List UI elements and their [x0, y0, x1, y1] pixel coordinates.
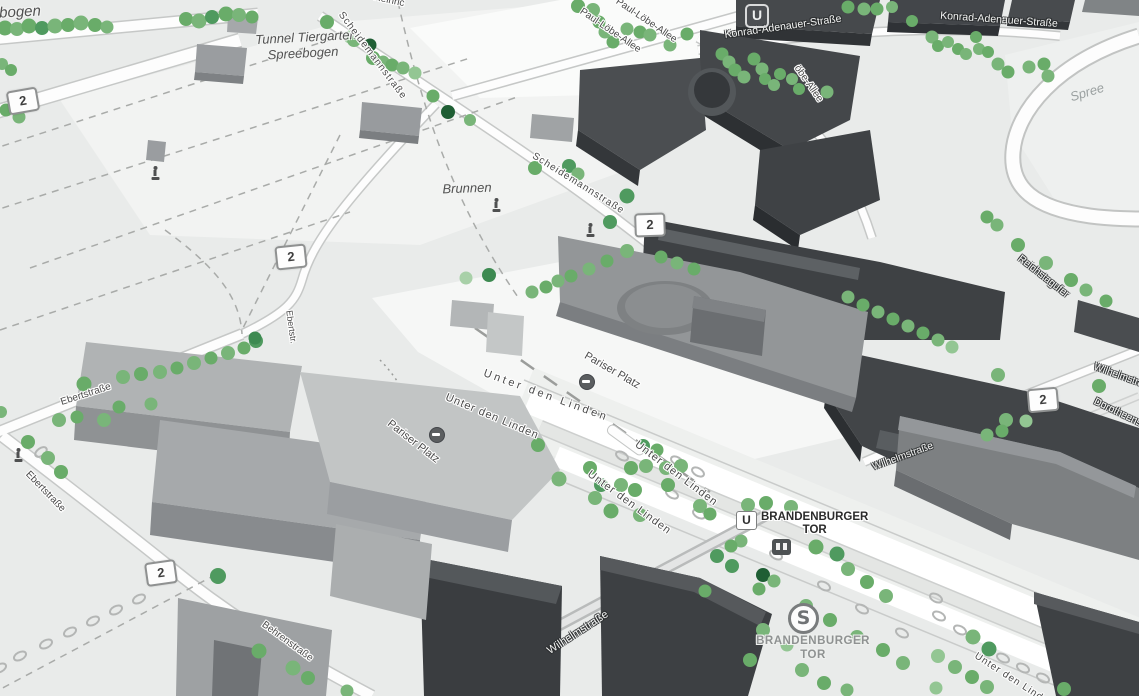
tree-marker — [101, 21, 114, 34]
tree-marker — [552, 472, 567, 487]
tree-marker — [710, 549, 724, 563]
tree-marker — [704, 508, 717, 521]
tree-marker — [1057, 682, 1071, 696]
tree-marker — [830, 547, 845, 562]
tree-marker — [872, 306, 885, 319]
s-station-name-line1: BRANDENBURGER — [756, 635, 870, 649]
map-geometry — [0, 0, 1139, 696]
tree-marker — [52, 413, 66, 427]
tree-marker — [621, 23, 634, 36]
tree-marker — [879, 589, 893, 603]
tree-marker — [671, 257, 684, 270]
tree-marker — [1100, 295, 1113, 308]
tree-marker — [841, 684, 854, 696]
tree-marker — [906, 15, 918, 27]
tree-marker — [932, 334, 945, 347]
tree-marker — [441, 105, 455, 119]
tree-marker — [981, 429, 994, 442]
tree-marker — [768, 79, 780, 91]
tree-marker — [88, 18, 102, 32]
tree-marker — [565, 270, 578, 283]
tree-marker — [116, 370, 130, 384]
tree-marker — [364, 39, 377, 52]
tree-marker — [74, 16, 89, 31]
tree-marker — [628, 483, 642, 497]
tree-marker — [1042, 70, 1055, 83]
tree-marker — [5, 64, 17, 76]
tree-marker — [13, 111, 26, 124]
tree-marker — [583, 263, 596, 276]
tree-marker — [857, 299, 870, 312]
tree-marker — [0, 104, 13, 117]
tree-marker — [249, 332, 262, 345]
tree-marker — [624, 461, 638, 475]
tree-marker — [604, 504, 619, 519]
tree-marker — [960, 48, 972, 60]
tree-marker — [738, 71, 751, 84]
road-oval-marking — [894, 627, 909, 640]
tree-marker — [97, 413, 111, 427]
tree-marker — [77, 377, 92, 392]
tree-marker — [970, 31, 982, 43]
tree-marker — [620, 244, 634, 258]
u-station-label: U BRANDENBURGER TOR — [736, 511, 868, 537]
tree-marker — [21, 435, 35, 449]
u-station-name-line2: TOR — [761, 524, 868, 537]
tree-marker — [917, 327, 930, 340]
tree-marker — [583, 461, 597, 475]
tree-marker — [795, 663, 809, 677]
tree-marker — [171, 362, 184, 375]
tree-marker — [246, 11, 259, 24]
tree-marker — [0, 406, 7, 418]
tree-marker — [286, 661, 301, 676]
tree-marker — [482, 268, 496, 282]
tree-marker — [71, 411, 84, 424]
tree-marker — [409, 67, 422, 80]
tree-marker — [1002, 66, 1015, 79]
tree-marker — [205, 10, 219, 24]
tree-marker — [871, 3, 884, 16]
tree-marker — [858, 3, 871, 16]
tree-marker — [54, 465, 68, 479]
tree-marker — [187, 356, 201, 370]
tree-marker — [1020, 415, 1033, 428]
building-block — [1082, 0, 1139, 16]
tree-marker — [931, 649, 945, 663]
tree-marker — [644, 29, 657, 42]
tree-marker — [526, 286, 539, 299]
tree-marker — [464, 114, 476, 126]
tree-marker — [1080, 284, 1093, 297]
s-station-name: BRANDENBURGER TOR — [756, 635, 870, 663]
tree-marker — [397, 62, 410, 75]
tree-marker — [991, 219, 1004, 232]
tree-marker — [659, 461, 673, 475]
tree-marker — [809, 540, 824, 555]
road-oval-marking — [38, 638, 53, 651]
tree-marker — [793, 83, 805, 95]
tree-marker — [614, 478, 628, 492]
tree-marker — [966, 630, 981, 645]
tree-marker — [725, 559, 739, 573]
tree-marker — [531, 438, 545, 452]
tree-marker — [61, 18, 75, 32]
tree-marker — [768, 575, 781, 588]
road-oval-marking — [108, 604, 123, 617]
tree-marker — [902, 320, 915, 333]
tree-marker — [386, 59, 399, 72]
u-bahn-badge: U — [736, 511, 757, 530]
building-block — [146, 140, 166, 162]
tree-marker — [219, 7, 234, 22]
tree-marker — [588, 491, 602, 505]
tree-marker — [982, 642, 997, 657]
tree-marker — [774, 68, 786, 80]
tree-marker — [633, 508, 647, 522]
tree-marker — [607, 36, 620, 49]
tree-marker — [965, 670, 979, 684]
tree-marker — [823, 613, 837, 627]
tree-marker — [145, 398, 158, 411]
tree-marker — [205, 352, 218, 365]
tree-marker — [930, 682, 943, 695]
tree-marker — [552, 275, 565, 288]
building-block — [888, 0, 1005, 26]
tree-marker — [603, 215, 617, 229]
tree-marker — [842, 1, 855, 14]
tree-marker — [238, 342, 251, 355]
tree-marker — [942, 36, 954, 48]
tree-marker — [601, 255, 614, 268]
map-canvas[interactable]: bogenTunnel TiergartenSpreebogenHeinricP… — [0, 0, 1139, 696]
tree-marker — [982, 46, 994, 58]
tree-marker — [179, 12, 193, 26]
tree-marker — [860, 575, 874, 589]
u-station-name-line1: BRANDENBURGER — [761, 511, 868, 524]
tree-marker — [887, 313, 900, 326]
tree-marker — [113, 401, 126, 414]
tree-marker — [753, 583, 766, 596]
tree-marker — [946, 341, 959, 354]
road-oval-marking — [131, 593, 146, 606]
building-block — [195, 44, 247, 76]
tree-marker — [210, 568, 226, 584]
building-block — [1074, 300, 1139, 352]
tree-marker — [594, 478, 608, 492]
tree-marker — [320, 15, 334, 29]
tree-marker — [948, 660, 962, 674]
tree-marker — [876, 643, 890, 657]
tree-marker — [996, 425, 1009, 438]
tree-marker — [41, 451, 55, 465]
road-oval-marking — [85, 615, 100, 628]
tree-marker — [1092, 379, 1106, 393]
tree-marker — [759, 496, 773, 510]
tree-marker — [664, 39, 677, 52]
s-bahn-logo-icon: S — [788, 603, 819, 634]
tree-marker — [528, 161, 542, 175]
tree-marker — [221, 346, 235, 360]
road-oval-marking — [1015, 662, 1030, 675]
tree-marker — [35, 21, 49, 35]
u-station-name: BRANDENBURGER TOR — [761, 511, 868, 537]
road-oval-marking — [816, 580, 831, 593]
tree-marker — [347, 33, 361, 47]
s-station-name-line2: TOR — [756, 649, 870, 663]
tree-marker — [661, 478, 675, 492]
tree-marker — [301, 671, 315, 685]
tree-marker — [1064, 273, 1078, 287]
tree-marker — [153, 365, 167, 379]
tree-marker — [743, 653, 757, 667]
tree-marker — [688, 263, 701, 276]
tree-marker — [651, 444, 664, 457]
road-oval-marking — [62, 626, 77, 639]
tree-marker — [1023, 61, 1036, 74]
tree-marker — [252, 644, 267, 659]
building-block — [530, 114, 574, 142]
tree-marker — [821, 86, 834, 99]
tree-marker — [886, 1, 898, 13]
road-oval-marking — [1035, 672, 1050, 685]
tree-marker — [427, 90, 440, 103]
tree-marker — [22, 19, 37, 34]
tree-marker — [980, 680, 994, 694]
u-bahn-logo-icon: U — [745, 4, 769, 28]
road-oval-marking — [12, 650, 27, 663]
tree-marker — [741, 498, 755, 512]
tree-marker — [991, 368, 1005, 382]
subway-entrance-icon — [772, 539, 791, 555]
tree-marker — [540, 281, 553, 294]
tree-marker — [655, 251, 668, 264]
tree-marker — [134, 367, 148, 381]
tree-marker — [586, 3, 600, 17]
tree-marker — [725, 540, 738, 553]
tree-marker — [1039, 256, 1053, 270]
tree-marker — [1038, 58, 1051, 71]
tree-marker — [232, 8, 246, 22]
road-oval-marking — [0, 662, 8, 675]
building-block — [486, 312, 524, 356]
tree-marker — [460, 272, 473, 285]
road-oval-marking — [854, 603, 869, 616]
building-rotunda — [694, 72, 730, 108]
tree-marker — [681, 28, 694, 41]
tree-marker — [1011, 238, 1025, 252]
tree-marker — [620, 189, 635, 204]
tree-marker — [842, 291, 855, 304]
tree-marker — [572, 168, 585, 181]
tree-marker — [48, 19, 63, 34]
tree-marker — [192, 14, 207, 29]
tree-marker — [674, 459, 688, 473]
building-block — [360, 102, 422, 136]
tree-marker — [786, 73, 798, 85]
tree-marker — [817, 676, 831, 690]
tree-marker — [841, 562, 855, 576]
tree-marker — [896, 656, 910, 670]
tree-marker — [639, 459, 653, 473]
tree-marker — [699, 585, 712, 598]
